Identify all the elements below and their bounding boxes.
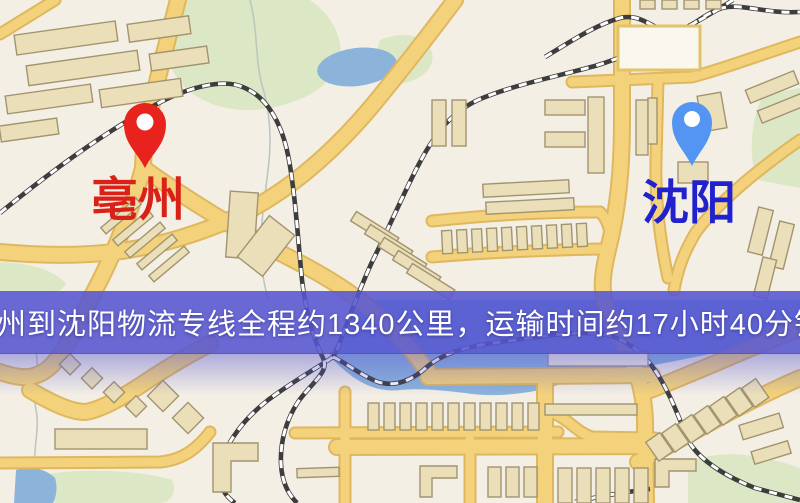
pin-hole [137,114,154,131]
map-canvas[interactable]: 亳州 沈阳 [0,0,800,503]
route-info-banner: 亳州到沈阳物流专线全程约1340公里，运输时间约17小时40分钟. [0,291,800,354]
map-screenshot: 亳州 沈阳 亳州到沈阳物流专线全程约1340公里，运输时间约17小时40分钟. [0,0,800,503]
destination-city-label: 沈阳 [642,176,736,229]
pin-hole [684,111,700,127]
route-info-text: 亳州到沈阳物流专线全程约1340公里，运输时间约17小时40分钟. [0,301,800,343]
origin-city-label: 亳州 [91,173,185,226]
